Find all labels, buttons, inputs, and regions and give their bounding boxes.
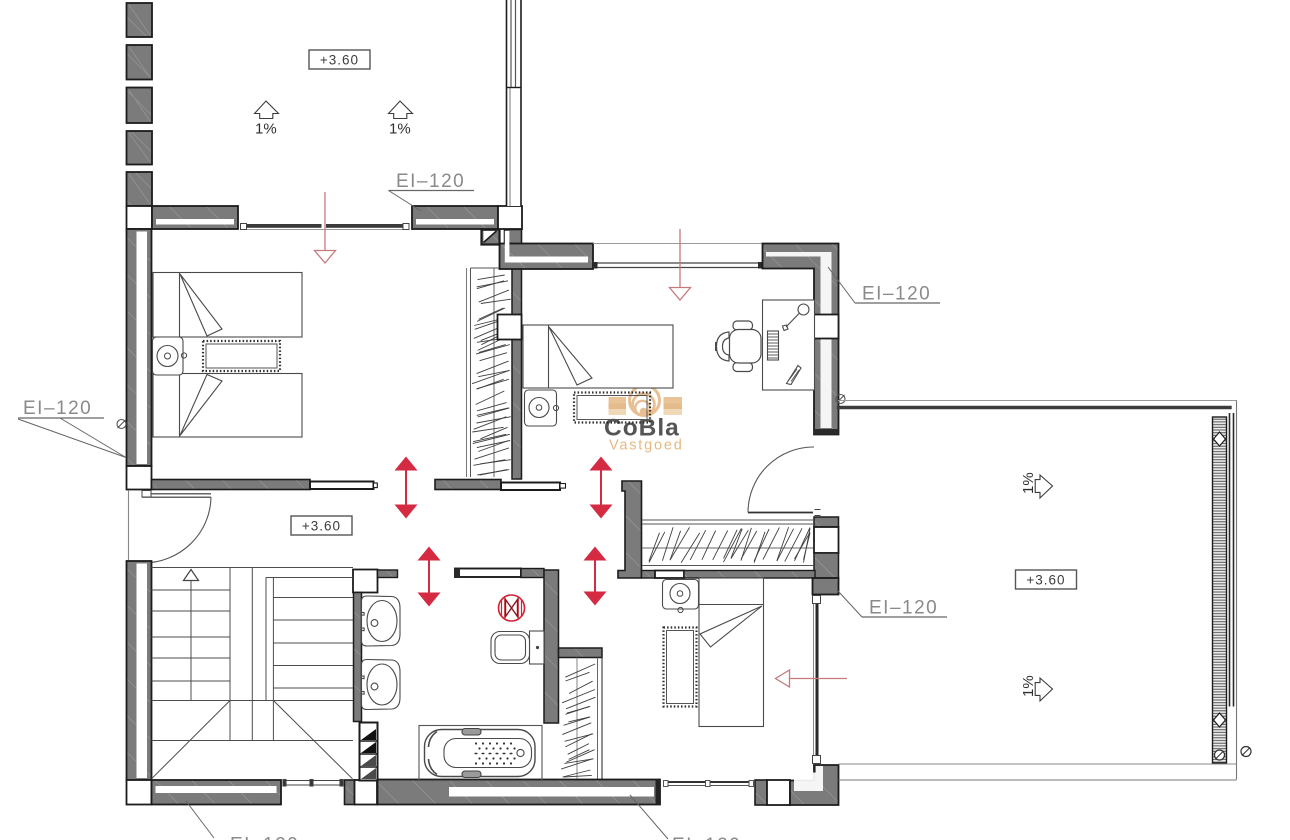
svg-text:1%: 1% <box>255 121 277 138</box>
svg-text:EI–120: EI–120 <box>396 171 465 192</box>
svg-text:1%: 1% <box>389 121 411 138</box>
svg-text:EI–120: EI–120 <box>672 835 741 840</box>
svg-text:+3.60: +3.60 <box>320 53 359 68</box>
svg-text:+3.60: +3.60 <box>302 519 341 534</box>
svg-text:EI–120: EI–120 <box>869 598 938 619</box>
svg-text:+3.60: +3.60 <box>1026 573 1065 588</box>
svg-text:Vastgoed: Vastgoed <box>609 438 684 454</box>
svg-text:EI–120: EI–120 <box>230 835 299 840</box>
svg-text:1%: 1% <box>1020 472 1037 494</box>
svg-text:1%: 1% <box>1020 675 1037 697</box>
svg-text:EI–120: EI–120 <box>862 284 931 305</box>
svg-text:EI–120: EI–120 <box>23 398 92 419</box>
